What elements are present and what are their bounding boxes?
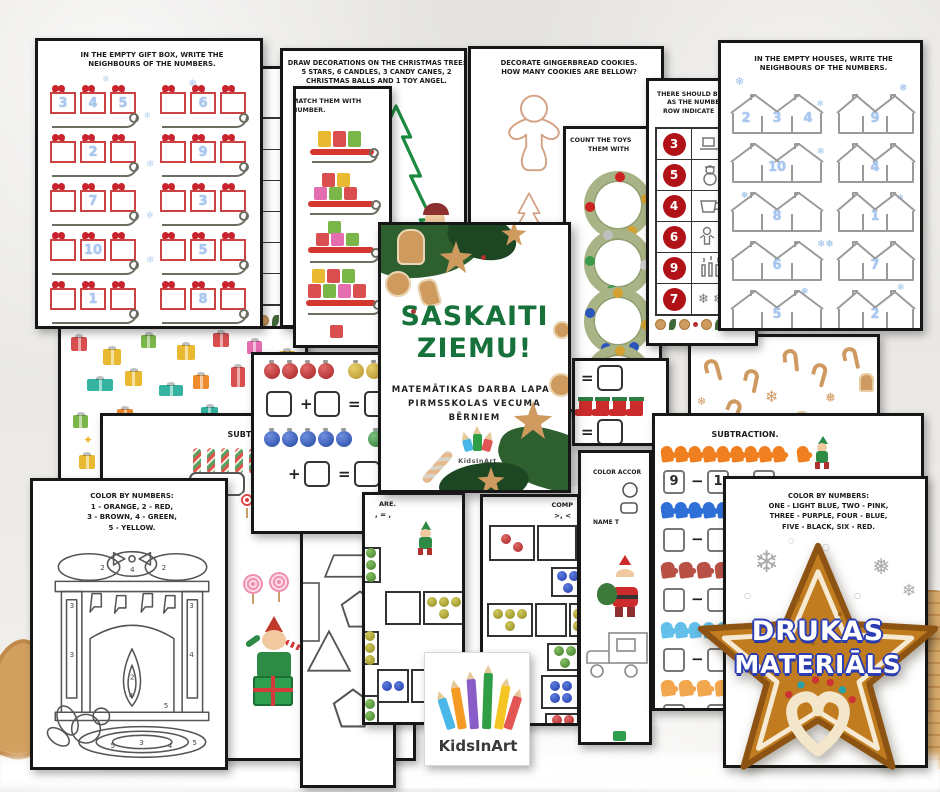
- plus-sign: +: [300, 395, 313, 413]
- answer-box: [663, 588, 685, 612]
- bauble-icon: [300, 431, 316, 447]
- present-stack: [310, 129, 380, 163]
- bauble-icon: [603, 230, 613, 240]
- svg-text:5: 5: [192, 738, 197, 747]
- stocking-icon: [596, 397, 609, 416]
- badge-line2: MATERIĀLS: [696, 650, 940, 679]
- bauble-icon: [318, 363, 334, 379]
- mitten-cookie: [397, 229, 425, 265]
- fireplace-line-art: 242 3334 245 3545: [43, 543, 221, 767]
- equals-sign: =: [581, 423, 594, 441]
- snowflake-icon: ✼: [144, 111, 151, 120]
- bauble-icon: [264, 431, 280, 447]
- mitten-icon: [744, 445, 758, 463]
- house-number-cells: 6: [729, 236, 825, 282]
- bauble-icon: [585, 256, 595, 266]
- lollipop-icon: [243, 574, 263, 594]
- snowflake-icon: ❄: [735, 75, 744, 88]
- brand-logo-pencils: [445, 663, 511, 729]
- svg-text:3: 3: [70, 601, 75, 610]
- mitten-icon: [678, 561, 694, 579]
- gift-icon: [613, 731, 626, 741]
- worksheet-title: DRAW DECORATIONS ON THE CHRISTMAS TREE:5…: [283, 59, 467, 86]
- gift-icon: [125, 371, 142, 386]
- empty-box: [535, 603, 567, 637]
- stocking-icon: [579, 397, 592, 416]
- worksheet-title: SUBTRACTION.: [675, 430, 815, 441]
- mitten-cookie-icon: [859, 373, 874, 392]
- round-cookie: [553, 321, 571, 339]
- candy-cane-icon: [782, 348, 799, 373]
- bow-icon: [222, 85, 235, 92]
- cover-page: SASKAITI ZIEMU! MATEMĀTIKAS DARBA LAPAS …: [378, 222, 571, 493]
- worksheet-title: COUNT THE TOYSTHEM WITH: [570, 137, 631, 154]
- snowflake-cookie-icon: ❄: [765, 387, 778, 406]
- bow-icon: [162, 85, 175, 92]
- candy-cane-icon: [841, 346, 861, 373]
- lollipop-icon: [269, 572, 289, 592]
- worksheet-title: ARE.: [379, 500, 396, 509]
- round-cookie: [549, 373, 571, 397]
- present-stack: [308, 173, 382, 213]
- mitten-icon: [730, 445, 744, 463]
- compare-symbols: >, <: [554, 512, 571, 521]
- empty-box: [537, 525, 577, 561]
- gift-icon: [159, 385, 183, 396]
- snowflake-icon: ❄: [146, 255, 154, 266]
- star-garland-icon: ✦: [83, 433, 93, 447]
- mitten-icon: [796, 445, 810, 463]
- svg-text:4: 4: [129, 691, 134, 700]
- svg-text:2: 2: [100, 563, 105, 572]
- svg-text:2: 2: [162, 563, 167, 572]
- mitten-icon: [716, 445, 730, 463]
- bauble-icon: [585, 308, 595, 318]
- answer-box: [597, 365, 623, 391]
- elf-with-gift: [241, 616, 303, 708]
- stocking-icon: [630, 397, 643, 416]
- bauble-icon: [336, 431, 352, 447]
- bow-icon: [82, 232, 95, 239]
- bow-icon: [112, 232, 125, 239]
- answer-box: [314, 391, 340, 417]
- present-stack: [314, 325, 384, 348]
- bow-icon: [52, 232, 65, 239]
- candy-stick-icon: [235, 448, 243, 474]
- bauble-icon: [585, 202, 595, 212]
- worksheet-title: IN THE EMPTY GIFT BOX, WRITE THENEIGHBOU…: [38, 51, 263, 70]
- sled-gift-boxes: 2: [50, 134, 144, 180]
- gift-icon: [103, 349, 121, 365]
- round-cookie: [385, 271, 411, 297]
- bow-icon: [162, 183, 175, 190]
- svg-text:4: 4: [130, 565, 135, 574]
- bow-icon: [82, 134, 95, 141]
- truck-outline: [583, 631, 652, 681]
- mitten-icon: [660, 621, 674, 639]
- bead-box: [541, 675, 580, 709]
- minuend-box: 9: [663, 470, 685, 494]
- triangle-shape: [305, 629, 353, 673]
- sled-gift-boxes: 1: [50, 281, 144, 327]
- house-number-cells: 234: [729, 89, 825, 135]
- bead-box: [489, 525, 535, 561]
- print-material-badge: DRUKAS MATERIĀLS: [696, 538, 940, 788]
- mitten-icon: [702, 445, 716, 463]
- worksheet-title: MATCH THEM WITHNUMBER.: [293, 97, 361, 114]
- bead-box: [545, 713, 580, 726]
- bow-icon: [222, 183, 235, 190]
- brand-logo-pencils: [465, 431, 491, 451]
- house-number-cells: 9: [835, 89, 917, 135]
- svg-text:3: 3: [70, 650, 75, 659]
- bow-icon: [52, 85, 65, 92]
- gift-icon: [87, 379, 113, 391]
- bead-box: [551, 567, 580, 597]
- present-stack: [306, 269, 384, 315]
- bow-icon: [162, 134, 175, 141]
- mitten-icon: [678, 679, 694, 697]
- answer-box: [663, 648, 685, 672]
- house-number-cells: 1: [835, 187, 917, 233]
- bauble-icon: [300, 363, 316, 379]
- cover-subtitle-line1: MATEMĀTIKAS DARBA LAPAS: [381, 385, 568, 395]
- svg-text:5: 5: [111, 741, 116, 750]
- bauble-icon: [282, 363, 298, 379]
- worksheet-gift-box-neighbours: IN THE EMPTY GIFT BOX, WRITE THENEIGHBOU…: [35, 38, 263, 329]
- sled-gift-boxes: 8: [160, 281, 254, 327]
- bow-icon: [82, 281, 95, 288]
- bow-icon: [222, 232, 235, 239]
- house-number-cells: 10: [729, 138, 825, 184]
- bow-icon: [162, 232, 175, 239]
- mitten-icon: [688, 445, 702, 463]
- bauble-icon: [264, 363, 280, 379]
- elf-figure: [813, 436, 831, 470]
- mitten-icon: [688, 501, 702, 519]
- bow-icon: [222, 134, 235, 141]
- bow-icon: [82, 85, 95, 92]
- bead-box: [547, 643, 580, 671]
- bead-box: [362, 631, 379, 665]
- bow-icon: [52, 183, 65, 190]
- gingerbread-man-outline: [495, 91, 573, 187]
- house-number-cells: 5: [729, 285, 825, 331]
- elf-figure: [415, 521, 435, 555]
- bow-icon: [222, 281, 235, 288]
- mitten-icon: [660, 445, 674, 463]
- bow-icon: [192, 85, 205, 92]
- worksheet-title: DECORATE GINGERBREAD COOKIES.HOW MANY CO…: [471, 59, 664, 77]
- bow-icon: [162, 281, 175, 288]
- mitten-row: [661, 446, 785, 462]
- mitten-icon: [660, 679, 676, 697]
- minus-sign: −: [691, 472, 704, 490]
- empty-box: [385, 591, 421, 625]
- house-number-cells: 4: [835, 138, 917, 184]
- rounded-rect-shape: [619, 501, 639, 515]
- snowflake-icon: ❄: [102, 75, 110, 85]
- gift-icon: [73, 415, 88, 428]
- equals-sign: =: [338, 465, 351, 483]
- bauble-icon: [615, 172, 625, 182]
- brand-name: KidsInArt: [425, 737, 530, 755]
- worksheet-santa-color: COLOR ACCOR NAME T: [578, 450, 652, 745]
- bow-icon: [192, 232, 205, 239]
- mitten-icon: [702, 501, 716, 519]
- sled-gift-boxes: 10: [50, 232, 144, 278]
- mitten-icon: [674, 445, 688, 463]
- candy-stick-icon: [221, 448, 229, 474]
- bauble-icon: [282, 431, 298, 447]
- bead-box: [423, 591, 465, 625]
- sled-gift-boxes: 3: [160, 183, 254, 229]
- svg-text:5: 5: [164, 701, 169, 710]
- bow-icon: [192, 134, 205, 141]
- snowflake-icon: ✼: [146, 211, 154, 221]
- bauble-icon: [615, 346, 625, 356]
- mitten-icon: [772, 445, 786, 463]
- mitten-icon: [674, 501, 688, 519]
- worksheet-title: COLOR ACCOR: [593, 469, 641, 477]
- house-number-cells: 2: [835, 285, 917, 331]
- gift-icon: [141, 335, 156, 348]
- worksheet-houses-neighbours: IN THE EMPTY HOUSES, WRITE THENEIGHBOURS…: [718, 40, 923, 331]
- snowflake-cookie-icon: ❄: [697, 395, 706, 408]
- bauble-icon: [318, 431, 334, 447]
- gift-icon: [231, 367, 245, 387]
- snowflake-icon: ❄: [146, 159, 154, 170]
- cover-subtitle-line2: PIRMSSKOLAS VECUMA: [381, 399, 568, 409]
- gift-icon: [193, 375, 209, 389]
- mitten-icon: [660, 561, 676, 579]
- bow-icon: [112, 134, 125, 141]
- svg-text:2: 2: [130, 673, 135, 682]
- bow-icon: [82, 183, 95, 190]
- mitten-icon: [758, 445, 772, 463]
- answer-box: [304, 461, 330, 487]
- svg-text:4: 4: [168, 741, 173, 750]
- gift-icon: [213, 333, 229, 347]
- sled-gift-boxes: 6: [160, 85, 254, 131]
- bead-box: [487, 603, 533, 637]
- cover-title-line2: ZIEMU!: [381, 333, 568, 364]
- answer-box: [354, 461, 380, 487]
- present-stack: [308, 221, 382, 263]
- worksheet-title: IN THE EMPTY HOUSES, WRITE THENEIGHBOURS…: [721, 55, 923, 74]
- candy-stick-icon: [207, 448, 215, 474]
- snowflake-cookie-icon: ❅: [825, 391, 836, 406]
- answer-box: [597, 419, 623, 445]
- sled-gift-boxes: 345: [50, 85, 144, 131]
- mitten-icon: [660, 501, 674, 519]
- bead-box: [362, 695, 379, 725]
- worksheet-color-fireplace: COLOR BY NUMBERS:1 - ORANGE, 2 - RED,3 -…: [30, 478, 228, 770]
- equals-sign: =: [348, 395, 361, 413]
- bow-icon: [112, 183, 125, 190]
- equals-sign: =: [581, 369, 594, 387]
- worksheet-title: COMP: [551, 501, 573, 510]
- stocking-row: [579, 397, 647, 416]
- gift-icon: [177, 345, 195, 360]
- sled-gift-boxes: 9: [160, 134, 254, 180]
- bow-icon: [192, 183, 205, 190]
- bow-icon: [52, 134, 65, 141]
- answer-box: [266, 391, 292, 417]
- sled-gift-boxes: 7: [50, 183, 144, 229]
- brand-card: KidsInArt: [424, 652, 530, 766]
- candy-stick-icon: [193, 448, 201, 474]
- cover-title-line1: SASKAITI: [381, 301, 568, 332]
- bow-icon: [192, 281, 205, 288]
- candy-cane-icon: [808, 361, 829, 388]
- bauble-icon: [613, 288, 623, 298]
- sled-gift-boxes: 5: [160, 232, 254, 278]
- worksheet-title: COLOR BY NUMBERS:ONE - LIGHT BLUE, TWO -…: [726, 491, 928, 532]
- badge-line1: DRUKAS: [696, 616, 940, 647]
- bow-icon: [112, 85, 125, 92]
- stocking-icon: [613, 397, 626, 416]
- answer-box: [663, 528, 685, 552]
- worksheet-title: THERE SHOULD BAS THE NUMBEROW INDICATE: [657, 91, 719, 116]
- house-number-cells: 8: [729, 187, 825, 233]
- berry-dot: [481, 255, 486, 260]
- gift-icon: [79, 455, 95, 469]
- worksheet-title: COLOR BY NUMBERS:1 - ORANGE, 2 - RED,3 -…: [33, 491, 228, 533]
- bead-box: [377, 669, 409, 703]
- worksheet-subtitle: NAME T: [593, 519, 619, 527]
- gift-icon: [71, 337, 87, 351]
- plus-sign: +: [288, 465, 301, 483]
- answer-box: [663, 704, 685, 711]
- bead-box: [362, 547, 381, 583]
- svg-text:3: 3: [189, 601, 194, 610]
- santa-figure: [603, 555, 643, 619]
- svg-text:3: 3: [139, 738, 144, 747]
- circle-shape: [621, 481, 639, 499]
- mitten-icon: [674, 621, 688, 639]
- bow-icon: [112, 281, 125, 288]
- candy-cane-icon: [741, 368, 761, 395]
- svg-text:4: 4: [189, 650, 194, 659]
- bauble-icon: [348, 363, 364, 379]
- bauble-row: [264, 431, 386, 447]
- house-number-cells: 7: [835, 236, 917, 282]
- candy-cane-icon: [702, 357, 723, 384]
- bow-icon: [52, 281, 65, 288]
- compare-symbols: , = ,: [375, 511, 391, 520]
